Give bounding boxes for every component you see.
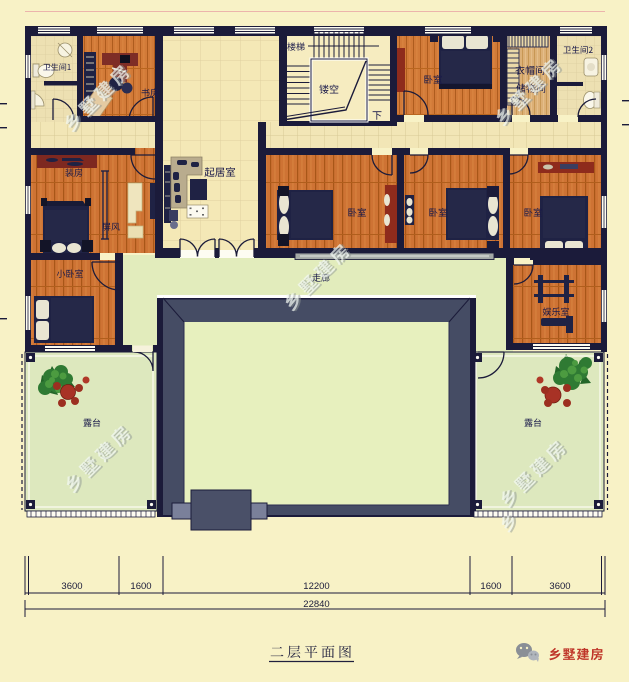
svg-text:1600: 1600 xyxy=(480,581,501,592)
svg-text:1600: 1600 xyxy=(130,581,151,592)
svg-text:3600: 3600 xyxy=(549,581,570,592)
svg-text:12200: 12200 xyxy=(303,581,329,592)
svg-text:3600: 3600 xyxy=(61,581,82,592)
svg-text:22840: 22840 xyxy=(303,599,329,610)
